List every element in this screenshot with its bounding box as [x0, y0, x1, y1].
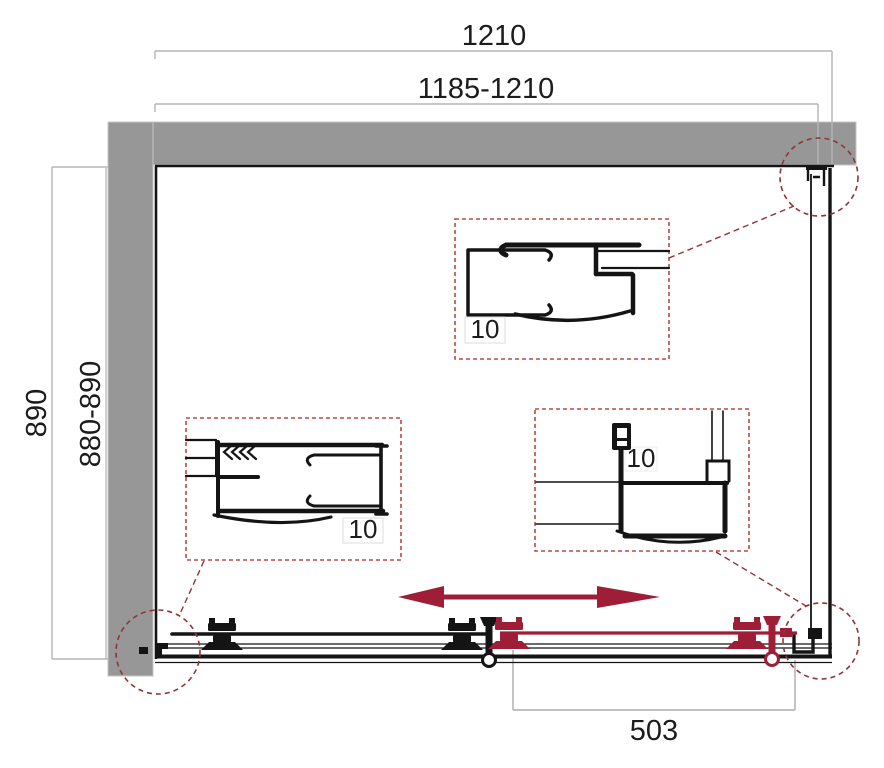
door-handle-knob-red	[763, 616, 781, 666]
detail-label-left: 10	[349, 514, 378, 544]
arrow-head-right	[597, 586, 660, 608]
dim-line-door-travel	[513, 650, 795, 710]
dim-text-top-overall: 1210	[462, 20, 527, 52]
slide-direction-arrow	[398, 586, 660, 608]
detail-box-support-profile: 10	[535, 409, 749, 551]
leader-line-right	[716, 552, 806, 606]
wall-side-stop-nub	[139, 647, 148, 654]
dim-text-top-range: 1185-1210	[418, 73, 555, 105]
detail-box-wall-profile-top: 10	[455, 219, 669, 359]
door-panel-black	[172, 617, 498, 667]
detail-box-border	[535, 409, 749, 551]
leader-line-top	[669, 206, 794, 258]
wall-top	[108, 122, 856, 165]
track-left-end-foot	[155, 649, 162, 657]
walls	[108, 122, 856, 676]
dim-text-door-travel: 503	[630, 715, 678, 747]
detail-label-right: 10	[627, 443, 656, 473]
dim-text-side-overall: 890	[21, 389, 53, 437]
technical-drawing-canvas: 10 10	[0, 0, 884, 768]
post-cap-notch-2	[617, 441, 627, 446]
track-right-catch	[808, 628, 822, 639]
detail-label-top: 10	[471, 314, 500, 344]
dim-text-side-range: 880-890	[75, 361, 107, 467]
wall-left	[108, 122, 153, 676]
track-left-end-profile	[155, 643, 168, 649]
arrow-shaft	[441, 595, 599, 600]
door-end-clip-red	[780, 628, 792, 637]
detail-box-wall-profile-left: 10	[186, 418, 401, 560]
leader-line-left	[179, 561, 204, 616]
post-cap-notch-1	[617, 428, 627, 438]
arrow-head-left	[398, 586, 444, 608]
shower-enclosure-plan: 10 10	[0, 0, 884, 768]
